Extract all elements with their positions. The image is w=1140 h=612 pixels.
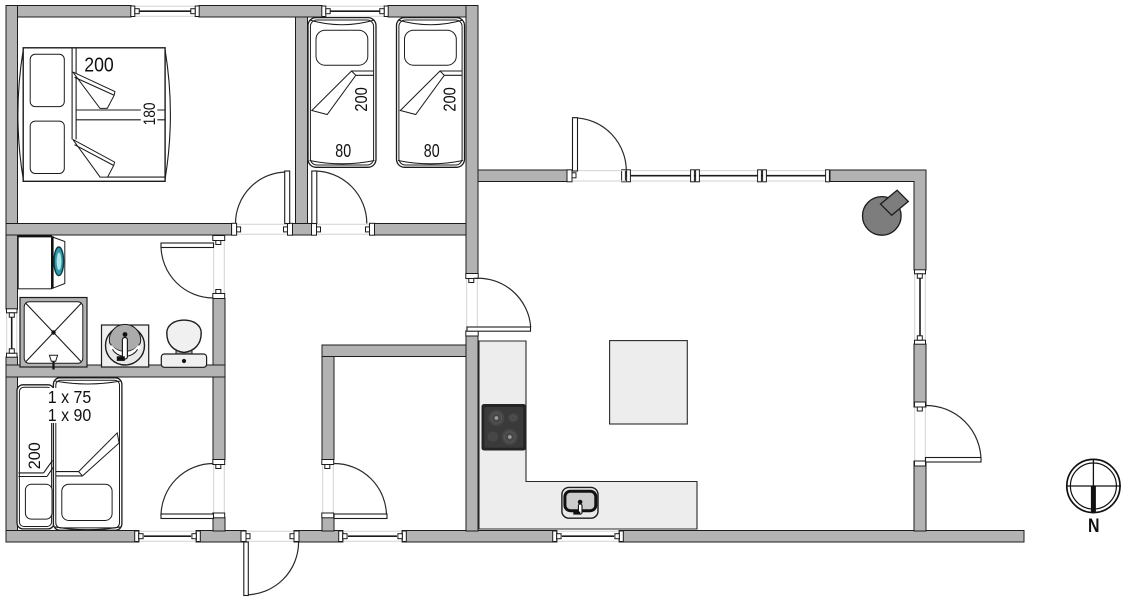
svg-text:200: 200 <box>25 442 44 469</box>
svg-text:1 x 75: 1 x 75 <box>48 387 91 407</box>
svg-text:1 x 90: 1 x 90 <box>48 405 91 425</box>
svg-text:200: 200 <box>440 87 460 112</box>
svg-text:200: 200 <box>84 55 114 77</box>
svg-text:180: 180 <box>140 102 159 125</box>
svg-text:N: N <box>1088 516 1100 537</box>
svg-text:80: 80 <box>335 140 351 161</box>
svg-text:80: 80 <box>424 140 440 161</box>
svg-text:200: 200 <box>351 87 371 112</box>
